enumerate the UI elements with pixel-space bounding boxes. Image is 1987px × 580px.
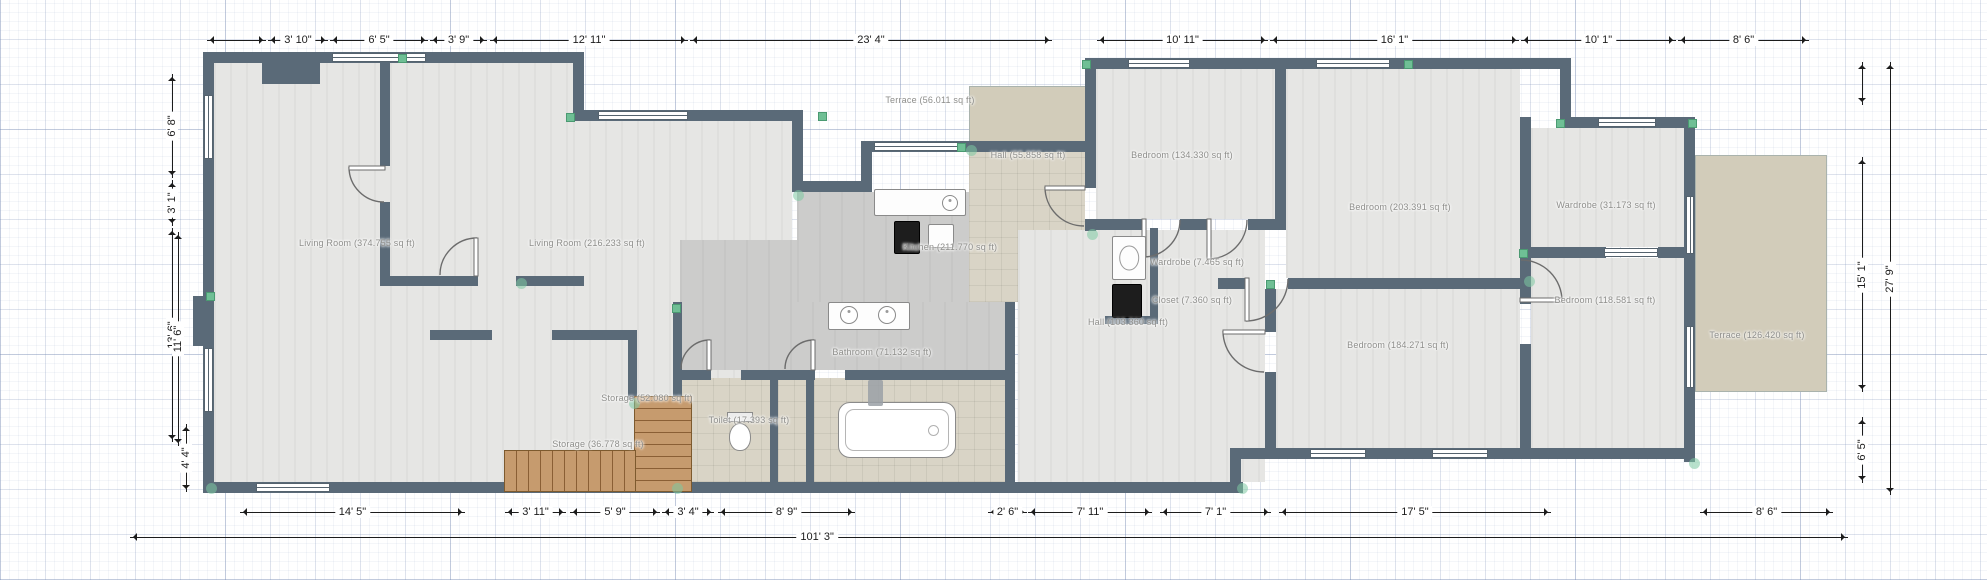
dimension-arrowhead [1886, 61, 1894, 69]
dimension-arrowhead [489, 36, 497, 44]
dimension-arrowhead [1677, 36, 1685, 44]
wall[interactable] [628, 330, 637, 400]
room-bedroom-4[interactable] [1276, 289, 1520, 448]
dimension-arrowhead [707, 508, 715, 516]
room-label: Terrace (56.011 sq ft) [885, 95, 974, 105]
wall-node-marker[interactable] [957, 143, 966, 152]
wall[interactable] [1005, 302, 1015, 482]
dimension-label: 3' 9" [444, 34, 473, 46]
dimension-label: 17' 5" [1397, 506, 1432, 518]
dimension-arrowhead [1826, 508, 1834, 516]
bath-mat[interactable] [868, 380, 883, 406]
room-label: Wardrobe (7.465 sq ft) [1150, 257, 1244, 267]
room-label: Bedroom (134.330 sq ft) [1131, 150, 1233, 160]
dimension-arrowhead [717, 508, 725, 516]
room-label: Hall (55.858 sq ft) [991, 150, 1066, 160]
wall[interactable] [845, 370, 1013, 380]
dimension-line: 6' 8" [172, 74, 173, 178]
dimension-arrowhead [559, 508, 567, 516]
dimension-arrowhead [1858, 476, 1866, 484]
wall[interactable] [203, 482, 1243, 493]
wall-node-marker[interactable] [206, 292, 215, 301]
dimension-label: 14' 5" [335, 506, 370, 518]
room-label: Kitchen (211.770 sq ft) [903, 242, 998, 252]
window[interactable] [1310, 449, 1366, 458]
room-label: Bedroom (203.391 sq ft) [1349, 202, 1451, 212]
dimension-line: 27' 9" [1890, 62, 1891, 495]
dimension-label: 7' 1" [1201, 506, 1230, 518]
window[interactable] [332, 53, 426, 62]
dimension-arrowhead [689, 36, 697, 44]
dimension-label: 27' 9" [1884, 261, 1896, 296]
dimension-arrowhead [168, 219, 176, 227]
door[interactable] [440, 238, 478, 276]
window[interactable] [204, 348, 213, 412]
dimension-arrowhead [129, 533, 137, 541]
wall[interactable] [1085, 58, 1096, 188]
wall[interactable] [380, 63, 390, 166]
dimension-arrowhead [1669, 36, 1677, 44]
dimension-arrowhead [1841, 533, 1849, 541]
wall[interactable] [380, 276, 478, 286]
dimension-arrowhead [1512, 36, 1520, 44]
dimension-line: 23' 4" [690, 40, 1052, 41]
dimension-line: 6' 5" [330, 40, 428, 41]
dimension-label: 10' 11" [1162, 34, 1203, 46]
dimension-arrowhead [1858, 61, 1866, 69]
dimension-arrowhead [1027, 508, 1035, 516]
door[interactable] [1045, 186, 1085, 226]
dimension-label: 4' 4" [180, 443, 192, 472]
room-terrace-right[interactable] [1695, 155, 1827, 392]
dimension-arrowhead [321, 36, 329, 44]
window[interactable] [1686, 326, 1694, 388]
dimension-arrowhead [1159, 508, 1167, 516]
dimension-label: 3' 1" [166, 188, 178, 217]
dimension-arrowhead [848, 508, 856, 516]
window[interactable] [1598, 118, 1656, 127]
dimension-arrowhead [1145, 508, 1153, 516]
dimension-arrowhead [1520, 36, 1528, 44]
dimension-label: 16' 1" [1377, 34, 1412, 46]
wall-node-marker[interactable] [398, 54, 407, 63]
dimension-label: 8' 9" [772, 506, 801, 518]
dimension-line: 17' 5" [1279, 512, 1551, 513]
dimension-label: 5' 9" [600, 506, 629, 518]
wall[interactable] [792, 110, 803, 191]
dimension-arrowhead [1261, 36, 1269, 44]
dimension-label: 15' 1" [1856, 257, 1868, 292]
dimension-arrowhead [1264, 508, 1272, 516]
sink-left[interactable] [840, 306, 858, 324]
room-terrace-top[interactable] [969, 86, 1087, 145]
dimension-line: 14' 5" [240, 512, 465, 513]
dimension-line: 7' 11" [1028, 512, 1152, 513]
window[interactable] [598, 111, 688, 120]
dimension-label: 3' 4" [673, 506, 702, 518]
dimension-arrowhead [1858, 416, 1866, 424]
room-label: Toilet (17.393 sq ft) [709, 415, 790, 425]
wall[interactable] [1265, 372, 1276, 459]
toilet-bowl[interactable] [729, 423, 751, 451]
corner-marker[interactable] [966, 145, 977, 156]
dimension-arrowhead [661, 508, 669, 516]
dimension-arrowhead [569, 508, 577, 516]
dimension-arrowhead [1802, 36, 1810, 44]
dimension-arrowhead [429, 36, 437, 44]
door[interactable] [785, 340, 815, 370]
dimension-line: 5' 9" [570, 512, 660, 513]
dimension-line: 3' 4" [662, 512, 714, 513]
dimension-label: 6' 5" [1856, 435, 1868, 464]
wall[interactable] [262, 54, 320, 84]
dimension-label: 101' 3" [796, 531, 838, 543]
dimension-line: 3' 1" [172, 180, 173, 226]
bathtub[interactable] [838, 402, 956, 458]
corner-marker[interactable] [672, 483, 683, 494]
dimension-arrowhead [182, 423, 190, 431]
dimension-line: 8' 9" [718, 512, 855, 513]
wall[interactable] [1275, 58, 1286, 230]
dimension-line [207, 40, 266, 41]
wall-node-marker[interactable] [672, 304, 681, 313]
dimension-arrowhead [1858, 385, 1866, 393]
corner-marker[interactable] [793, 190, 804, 201]
wall[interactable] [770, 378, 778, 482]
dimension-arrowhead [480, 36, 488, 44]
door[interactable] [1142, 219, 1180, 257]
dimension-arrowhead [168, 171, 176, 179]
dimension-arrowhead [421, 36, 429, 44]
dimension-line: 11' 6" [178, 232, 179, 446]
corner-marker[interactable] [1087, 229, 1098, 240]
door[interactable] [349, 166, 385, 202]
dimension-label: 23' 4" [853, 34, 888, 46]
dimension-arrowhead [458, 508, 466, 516]
dimension-label: 7' 11" [1073, 506, 1108, 518]
corner-marker[interactable] [516, 278, 527, 289]
window[interactable] [1686, 196, 1694, 254]
room-label: Storage (36.778 sq ft) [552, 439, 643, 449]
window[interactable] [1128, 59, 1190, 68]
dimension-arrowhead [1096, 36, 1104, 44]
dimension-line: 10' 11" [1097, 40, 1268, 41]
door[interactable] [1207, 219, 1247, 259]
room-toilet[interactable] [681, 378, 770, 482]
wall-node-marker[interactable] [1266, 280, 1275, 289]
room-passage[interactable] [778, 378, 806, 482]
wall[interactable] [430, 330, 492, 340]
room-bedroom-1[interactable] [1096, 69, 1275, 219]
corner-marker[interactable] [206, 483, 217, 494]
wall[interactable] [1288, 278, 1520, 289]
dimension-line: 101' 3" [130, 537, 1848, 538]
dimension-line: 7' 1" [1160, 512, 1271, 513]
room-label: Storage (52.080 sq ft) [601, 393, 692, 403]
wall[interactable] [681, 370, 711, 380]
wall[interactable] [1218, 278, 1245, 289]
wall-node-marker[interactable] [1519, 249, 1528, 258]
dimension-arrowhead [504, 508, 512, 516]
dimension-line [1862, 62, 1863, 105]
dimension-line: 2' 6" [988, 512, 1027, 513]
dimension-arrowhead [1278, 508, 1286, 516]
dimension-arrowhead [239, 508, 247, 516]
stairs[interactable] [504, 450, 636, 492]
window[interactable] [256, 483, 330, 492]
dimension-line: 8' 6" [1700, 512, 1833, 513]
wall[interactable] [1520, 247, 1606, 258]
window[interactable] [1316, 59, 1390, 68]
dimension-label: 8' 6" [1729, 34, 1758, 46]
dimension-arrowhead [182, 485, 190, 493]
dimension-label: 3' 11" [518, 506, 553, 518]
dimension-arrowhead [168, 73, 176, 81]
wall[interactable] [741, 370, 815, 380]
dimension-label: 12' 11" [569, 34, 610, 46]
dimension-line: 4' 4" [186, 424, 187, 492]
dimension-label: 3' 10" [280, 34, 315, 46]
room-label: Closet (7.360 sq ft) [1152, 295, 1232, 305]
dimension-arrowhead [206, 36, 214, 44]
room-label: Bedroom (184.271 sq ft) [1347, 340, 1449, 350]
dimension-line: 15' 1" [1862, 157, 1863, 392]
room-living-1[interactable] [214, 63, 573, 482]
wall[interactable] [806, 378, 814, 482]
room-label: Living Room (216.233 sq ft) [529, 238, 645, 248]
dimension-line: 10' 1" [1521, 40, 1676, 41]
dimension-label: 10' 1" [1581, 34, 1616, 46]
dimension-arrowhead [329, 36, 337, 44]
wall[interactable] [552, 330, 632, 340]
wall[interactable] [1684, 117, 1695, 462]
dimension-arrowhead [1699, 508, 1707, 516]
dimension-line: 16' 1" [1270, 40, 1519, 41]
corner-marker[interactable] [1689, 458, 1700, 469]
dimension-line: 12' 11" [490, 40, 688, 41]
window[interactable] [874, 142, 958, 151]
dimension-arrowhead [1858, 98, 1866, 106]
dimension-arrowhead [1045, 36, 1053, 44]
dimension-arrowhead [1858, 156, 1866, 164]
window[interactable] [1604, 248, 1658, 257]
dimension-label: 6' 8" [166, 111, 178, 140]
dimension-arrowhead [1269, 36, 1277, 44]
sink-right[interactable] [878, 306, 896, 324]
wall-node-marker[interactable] [1556, 119, 1565, 128]
dimension-arrowhead [267, 36, 275, 44]
washing-machine[interactable] [1112, 236, 1146, 280]
dimension-arrowhead [1886, 488, 1894, 496]
wall[interactable] [1520, 344, 1531, 459]
dimension-arrowhead [259, 36, 267, 44]
dimension-label: 6' 5" [364, 34, 393, 46]
room-label: Living Room (374.755 sq ft) [299, 238, 415, 248]
room-wardrobe[interactable] [1531, 128, 1684, 247]
dimension-arrowhead [168, 179, 176, 187]
room-label: Bedroom (118.581 sq ft) [1555, 295, 1656, 305]
dimension-line: 3' 10" [268, 40, 328, 41]
dimension-line: 3' 9" [430, 40, 487, 41]
wall-node-marker[interactable] [1082, 60, 1091, 69]
dimension-arrowhead [681, 36, 689, 44]
kitchen-sink[interactable] [942, 195, 958, 211]
dimension-arrowhead [653, 508, 661, 516]
wall[interactable] [1520, 117, 1531, 258]
wall-node-marker[interactable] [818, 112, 827, 121]
wall[interactable] [193, 296, 203, 346]
dimension-arrowhead [174, 231, 182, 239]
closet-box[interactable] [1112, 284, 1142, 318]
corner-marker[interactable] [1524, 276, 1535, 287]
wall[interactable] [1180, 219, 1207, 230]
room-label: Wardrobe (31.173 sq ft) [1556, 200, 1655, 210]
window[interactable] [204, 95, 213, 159]
room-label: Bathroom (71.132 sq ft) [832, 347, 931, 357]
dimension-label: 2' 6" [993, 506, 1022, 518]
wall-node-marker[interactable] [566, 113, 575, 122]
dimension-line: 6' 5" [1862, 417, 1863, 483]
door[interactable] [681, 340, 711, 370]
corner-marker[interactable] [1237, 483, 1248, 494]
dimension-label: 8' 6" [1752, 506, 1781, 518]
dimension-line: 3' 11" [505, 512, 566, 513]
room-label: Hall (103.360 sq ft) [1088, 317, 1168, 327]
wall-node-marker[interactable] [1688, 119, 1697, 128]
dimension-arrowhead [1544, 508, 1552, 516]
window[interactable] [1432, 449, 1488, 458]
room-label: Terrace (126.420 sq ft) [1709, 330, 1804, 340]
floorplan-canvas[interactable]: Living Room (374.755 sq ft)Living Room (… [0, 0, 1987, 580]
dimension-line: 8' 6" [1678, 40, 1809, 41]
room-bedroom-2[interactable] [1286, 69, 1520, 278]
door[interactable] [1223, 330, 1265, 372]
room-kitchen[interactable] [680, 240, 797, 302]
dimension-label: 11' 6" [172, 322, 184, 357]
wall[interactable] [792, 181, 872, 192]
wall-node-marker[interactable] [1404, 60, 1413, 69]
